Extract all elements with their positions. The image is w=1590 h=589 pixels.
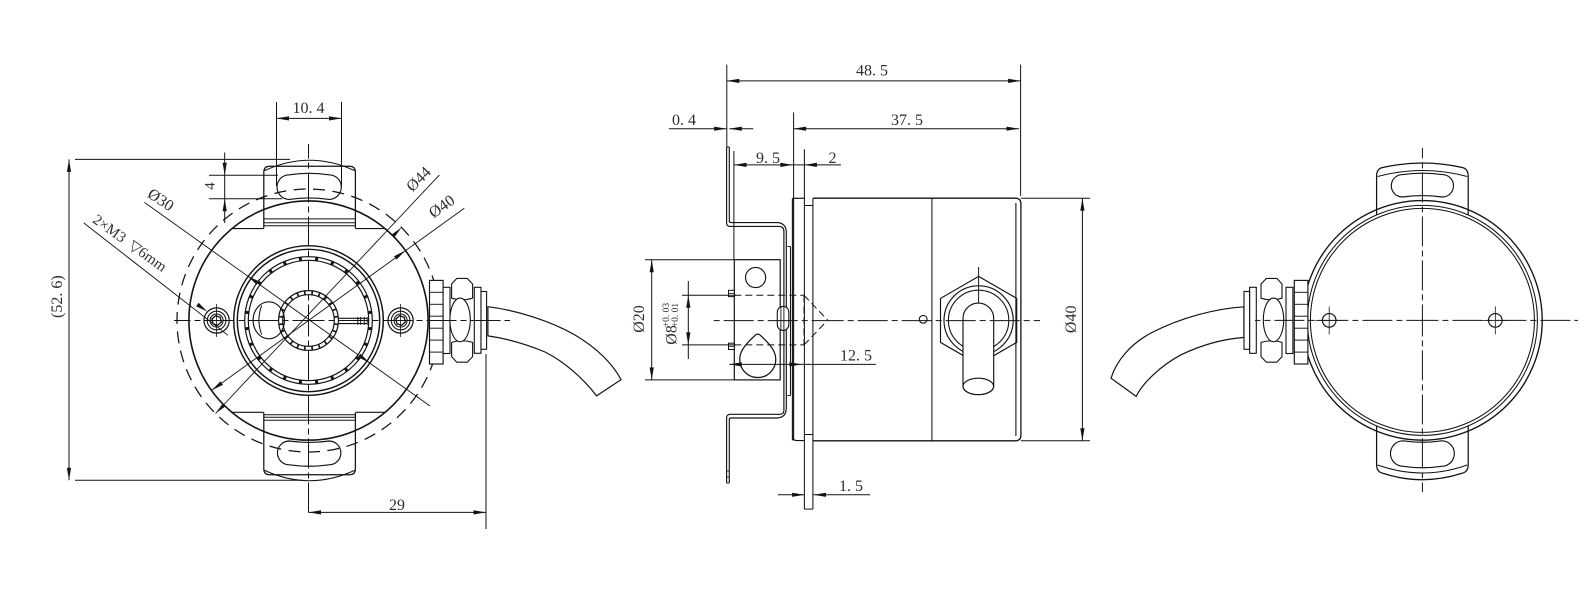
svg-text:10. 4: 10. 4: [293, 100, 325, 117]
svg-text:9. 5: 9. 5: [756, 150, 780, 167]
svg-text:1. 5: 1. 5: [839, 478, 863, 495]
svg-text:29: 29: [389, 497, 405, 514]
svg-text:Ø40: Ø40: [1063, 306, 1080, 334]
svg-text:2: 2: [829, 150, 837, 167]
svg-text:4: 4: [203, 182, 219, 190]
svg-text:(52. 6): (52. 6): [49, 275, 66, 318]
svg-text:48. 5: 48. 5: [856, 63, 888, 80]
svg-text:Ø20: Ø20: [631, 305, 648, 333]
svg-text:0. 4: 0. 4: [672, 112, 696, 129]
svg-text:12. 5: 12. 5: [840, 348, 872, 365]
svg-text:37. 5: 37. 5: [891, 112, 923, 129]
svg-text:+0. 01: +0. 01: [671, 303, 681, 328]
